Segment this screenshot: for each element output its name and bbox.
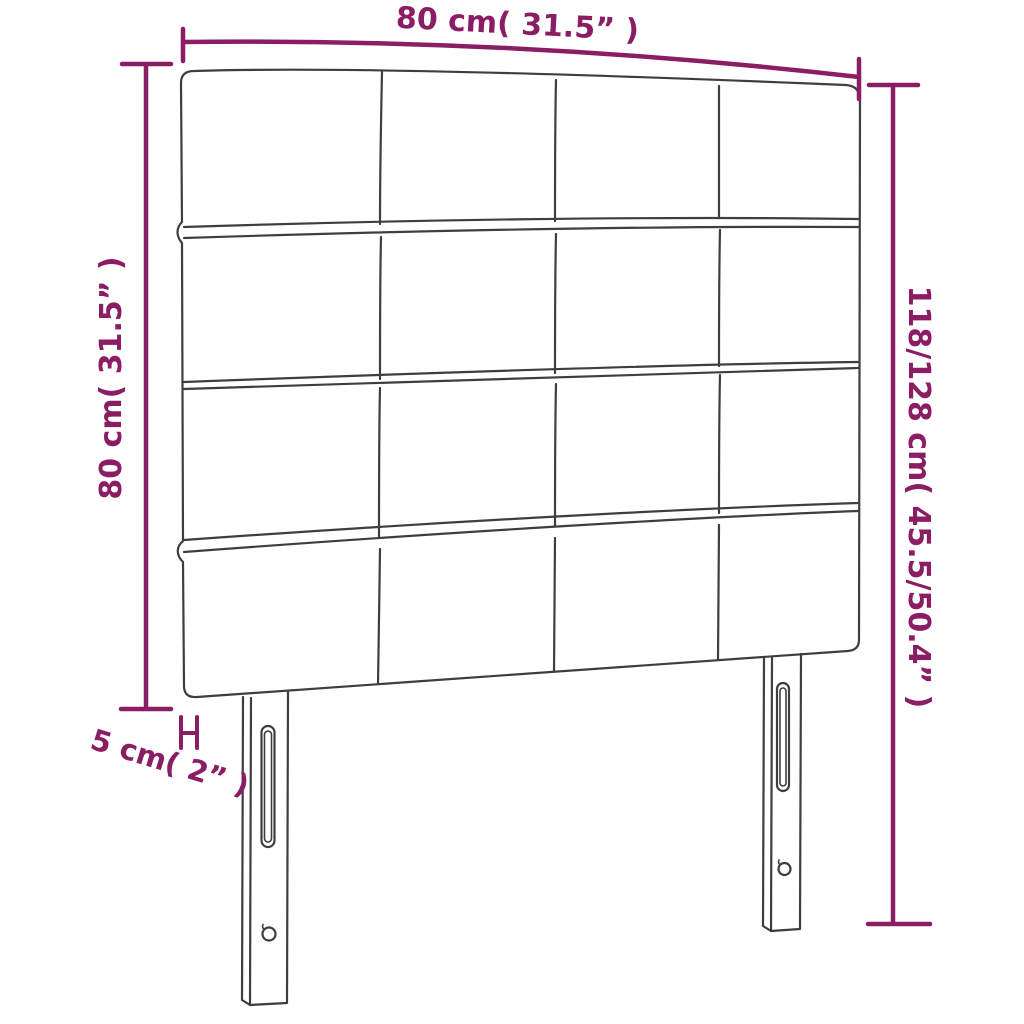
headboard-drawing: [178, 70, 861, 1005]
left-leg-slot-inner: [265, 731, 272, 842]
dimension-labels: 80 cm( 31.5” ) 80 cm( 31.5” ) 118/128 cm…: [87, 1, 936, 803]
row-seam-1: [184, 218, 858, 238]
right-leg-slot-inner: [780, 688, 786, 786]
headboard-outline: [178, 70, 861, 697]
right-leg: [763, 654, 801, 931]
right-leg-slot: [777, 683, 789, 791]
left-leg-hole: [263, 928, 276, 941]
total-height-dimension-label: 118/128 cm( 45.5/50.4” ): [901, 286, 936, 709]
right-leg-hole: [779, 863, 791, 875]
left-leg-slot: [262, 726, 275, 847]
column-seam-1: [378, 72, 382, 684]
left-leg: [242, 692, 288, 1005]
height-dimension-label: 80 cm( 31.5” ): [94, 256, 129, 499]
row-seam-3: [184, 503, 858, 552]
width-dimension-label: 80 cm( 31.5” ): [395, 1, 640, 49]
column-seam-2: [554, 80, 556, 671]
leg-gap-bracket-icon: [181, 717, 197, 748]
right-leg-outline: [763, 654, 801, 931]
diagram-canvas: 80 cm( 31.5” ) 80 cm( 31.5” ) 118/128 cm…: [0, 0, 1024, 1024]
leg-offset-dimension-label: 5 cm( 2” ): [87, 722, 253, 802]
row-seam-2: [184, 362, 858, 389]
headboard-diagram: 80 cm( 31.5” ) 80 cm( 31.5” ) 118/128 cm…: [0, 0, 1024, 1024]
right-leg-hole-notch: [779, 860, 780, 865]
left-leg-hole-notch: [263, 925, 264, 930]
